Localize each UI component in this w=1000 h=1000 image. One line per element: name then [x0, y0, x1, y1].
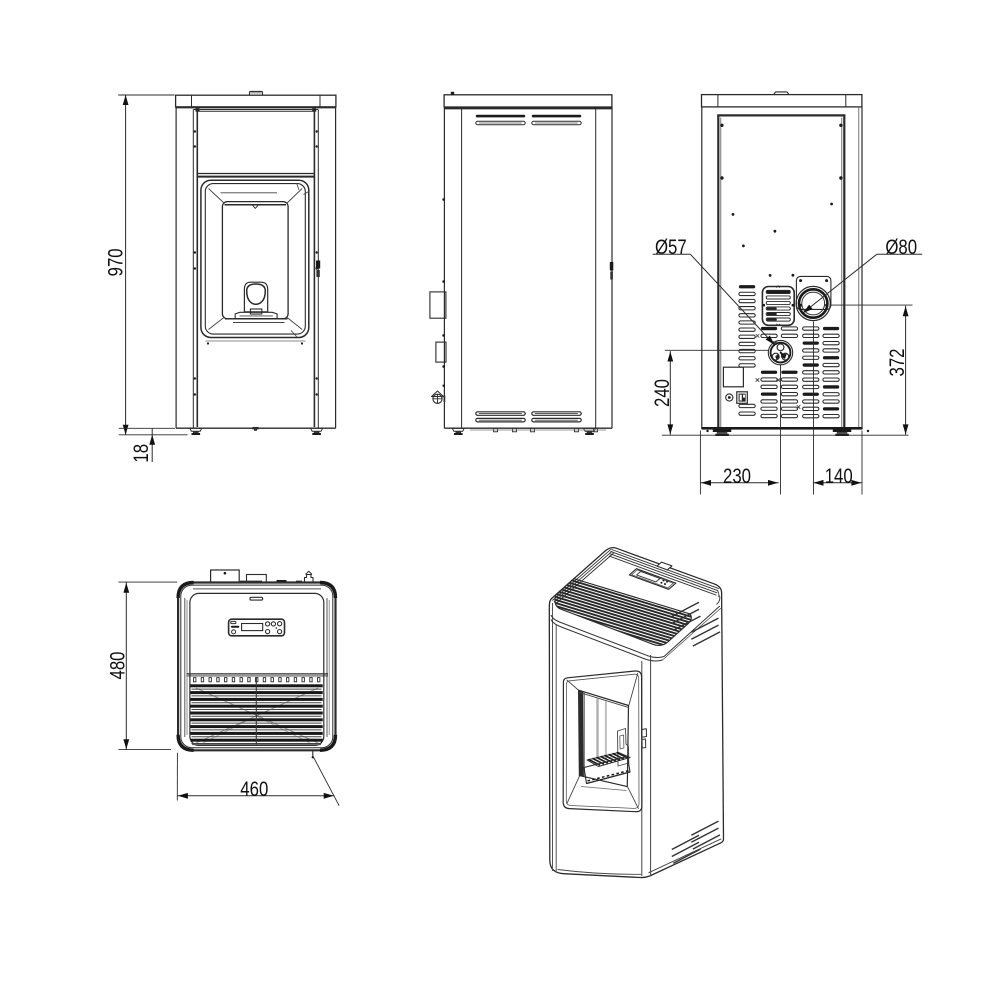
svg-text:Ø80: Ø80 [885, 237, 917, 260]
svg-text:460: 460 [240, 778, 268, 801]
svg-text:240: 240 [651, 379, 674, 407]
svg-text:140: 140 [825, 465, 853, 488]
svg-text:18: 18 [131, 444, 154, 463]
svg-text:480: 480 [107, 651, 130, 679]
svg-text:970: 970 [105, 248, 128, 276]
svg-text:372: 372 [886, 348, 909, 376]
svg-text:Ø57: Ø57 [655, 237, 687, 260]
svg-text:230: 230 [723, 465, 751, 488]
